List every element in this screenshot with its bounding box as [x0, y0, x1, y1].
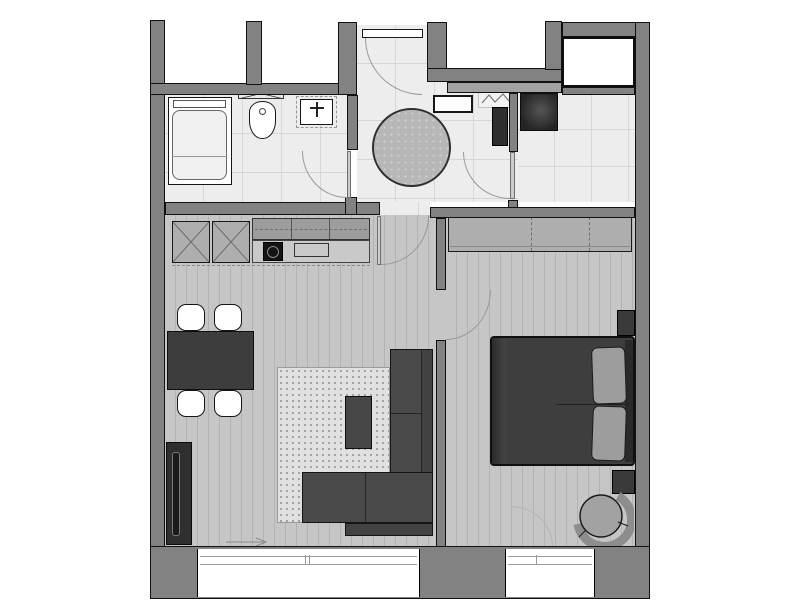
wall-shaft-bottom	[562, 87, 635, 95]
wall-bedroom-divider-upper	[436, 218, 446, 290]
sofa-seat-section	[302, 472, 433, 523]
pillow	[591, 346, 627, 404]
dining-table	[167, 331, 254, 390]
window-mullion	[305, 555, 306, 565]
sofa-cushion-seam	[365, 473, 366, 522]
round-rug	[372, 108, 451, 187]
dining-chair	[214, 390, 242, 417]
wall-right	[635, 22, 650, 599]
utility-door-leaf	[510, 152, 515, 199]
toilet	[249, 101, 276, 139]
cooktop	[263, 242, 283, 261]
kitchen-tall-unit-1	[172, 221, 210, 263]
living-room-window	[197, 549, 420, 597]
bed-center-seam	[556, 404, 628, 405]
cabinet-divider	[329, 219, 330, 239]
wall-bedroom-divider-lower	[436, 340, 446, 548]
faucet-crossbar-icon	[310, 107, 324, 109]
wall-shaft-left	[545, 21, 562, 70]
bathtub-basin	[172, 110, 227, 180]
bedroom-window	[505, 549, 595, 597]
sofa-chaise-section	[390, 349, 433, 473]
bathtub-ledge	[173, 100, 226, 108]
flush-button-icon	[259, 108, 266, 115]
nightstand	[617, 310, 635, 336]
bedroom-door-threshold	[436, 290, 446, 340]
kitchen-tall-unit-2	[212, 221, 250, 263]
duct-shaft	[562, 37, 635, 87]
wall-left	[150, 20, 165, 599]
sofa-backrest	[421, 350, 432, 472]
burner-icon	[267, 246, 279, 258]
wardrobe	[448, 216, 632, 252]
cabinet-dashed-line	[255, 229, 367, 230]
window-mullion	[309, 555, 310, 565]
sofa-cushion-seam	[391, 413, 421, 414]
wall-utility-divider	[509, 93, 518, 152]
wall-stub	[345, 197, 357, 215]
cabinet-divider	[291, 219, 292, 239]
floor-plan	[0, 0, 800, 600]
faucet-icon	[316, 102, 318, 117]
bathtub-seam	[172, 156, 227, 157]
entry-door-threshold	[380, 202, 430, 215]
window-frame-line	[508, 556, 592, 557]
dining-chair	[177, 304, 205, 331]
counter-overhang-dashes	[172, 265, 370, 266]
tv-unit	[166, 442, 192, 545]
entry-wall-shelf	[433, 95, 473, 113]
dining-chair	[177, 390, 205, 417]
duvet-fold	[492, 338, 506, 464]
wardrobe-front-line	[450, 246, 630, 247]
kitchen-sink	[294, 243, 329, 257]
dining-chair	[214, 304, 242, 331]
entrance-pier-left	[338, 22, 357, 95]
sofa-back-strip	[345, 523, 433, 536]
crossed-unit-icon	[213, 222, 249, 262]
bathtub	[168, 97, 232, 185]
entrance-door-leaf	[362, 29, 423, 38]
wall-pier	[246, 21, 262, 85]
kitchen-upper-cabinets	[252, 218, 370, 240]
crossed-unit-icon	[173, 222, 209, 262]
wall-utility-ledge	[447, 82, 562, 93]
pillow	[591, 405, 627, 461]
window-frame-line	[508, 564, 592, 565]
headboard	[625, 340, 633, 462]
tv-screen-icon	[172, 452, 180, 536]
double-bed	[490, 336, 635, 466]
bathroom-door-leaf	[347, 151, 351, 198]
wall-bathroom-divider	[347, 95, 358, 150]
coffee-table	[345, 396, 372, 449]
washing-machine	[520, 93, 558, 131]
utility-tall-cabinet	[492, 107, 508, 146]
window-mullion	[536, 555, 537, 565]
wall-top-utility	[427, 68, 562, 82]
wall-bedroom-top	[430, 207, 635, 218]
washbasin	[300, 99, 333, 125]
armchair	[570, 486, 634, 550]
